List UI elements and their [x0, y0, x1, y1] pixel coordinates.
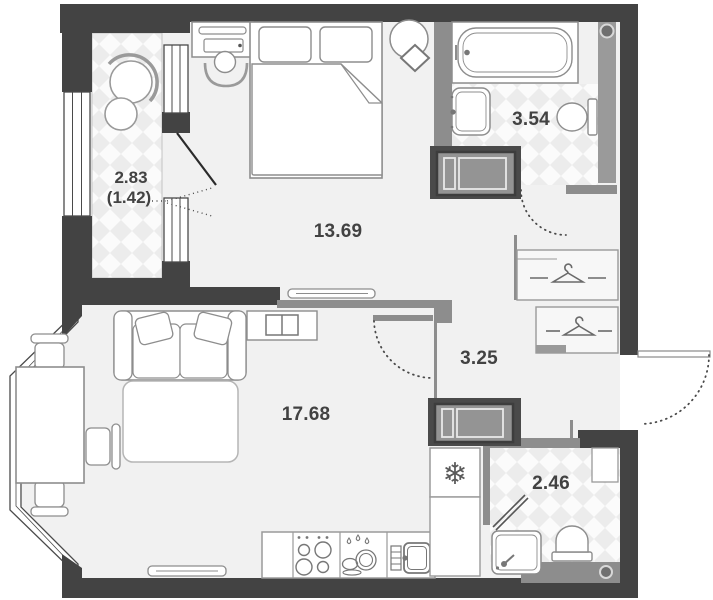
fridge-snowflake-icon: ❄	[442, 457, 467, 492]
loggia-table-icon	[110, 61, 152, 103]
wall-hall-stub	[570, 420, 573, 438]
window-loggia-lower	[164, 198, 188, 262]
entrance-door-swing	[641, 355, 709, 424]
wall-bedroom-living	[188, 287, 280, 305]
wall-wc-left	[483, 448, 490, 525]
window-loggia-upper	[164, 45, 188, 113]
loggia-area-secondary-label: (1.42)	[107, 188, 151, 207]
pipe-riser-bottom-icon	[600, 566, 612, 578]
wc-sink-icon	[492, 531, 541, 574]
double-bed	[250, 22, 382, 178]
wall-top	[188, 4, 638, 22]
washer-niche-2	[428, 398, 521, 446]
wardrobe-2	[536, 307, 618, 353]
living-radiator	[148, 566, 226, 576]
pillow-left	[259, 27, 311, 62]
living-hall-door-leaf	[373, 315, 433, 321]
wall-bedroom-hall	[277, 300, 452, 308]
wall-loggia-block-lower	[162, 261, 190, 290]
floorplan-canvas: ❄	[0, 0, 713, 600]
loggia-area-label: 2.83	[114, 168, 147, 187]
wall-bedroom-bathroom	[434, 22, 452, 150]
dining-chair-right	[86, 428, 110, 465]
wardrobe-sill	[536, 345, 566, 353]
living-area-label: 17.68	[282, 404, 331, 425]
loggia-stool-icon	[105, 98, 137, 130]
kitchen-tall-cabinet	[430, 497, 480, 576]
dining-chair-bottom	[35, 481, 64, 507]
dining-table	[16, 367, 84, 483]
sofa	[114, 311, 246, 380]
window-left	[64, 92, 90, 216]
entrance-door-leaf	[638, 351, 710, 357]
bedroom-area-label: 13.69	[314, 221, 363, 242]
bathtub-icon	[452, 22, 578, 83]
bathroom-area-label: 3.54	[512, 109, 550, 130]
dining-chair-top	[31, 334, 68, 343]
rug	[123, 381, 238, 462]
fridge: ❄	[430, 448, 480, 497]
hallway-area-label: 3.25	[460, 348, 498, 369]
wall-right-upper	[620, 4, 638, 355]
wall-loggia-block-upper	[162, 112, 190, 133]
wall-hall-hook	[434, 308, 452, 323]
bedroom-radiator	[288, 289, 375, 298]
bathroom-sink-icon	[450, 88, 490, 135]
wall-bathroom-bottom	[566, 185, 617, 194]
tv-stand	[247, 311, 317, 340]
desk-chair-seat	[215, 52, 236, 73]
wc-area-label: 2.46	[532, 473, 570, 494]
pipe-riser-top-icon	[601, 25, 614, 38]
washer-niche-1	[430, 146, 521, 199]
pillow-right	[320, 27, 372, 62]
faucet-dot	[402, 555, 407, 560]
wardrobe-1	[517, 250, 618, 300]
wall-wc-top-dark	[578, 430, 620, 448]
wc-shelf	[592, 448, 618, 482]
vent-shaft	[598, 22, 616, 183]
wall-living-hall-thin	[434, 323, 437, 400]
wall-left-upper	[62, 4, 92, 92]
sofa-armrest-left	[114, 311, 132, 380]
wall-right-lower	[620, 430, 638, 598]
tub-faucet-dot	[464, 50, 470, 56]
floorplan-svg: ❄	[0, 0, 713, 600]
